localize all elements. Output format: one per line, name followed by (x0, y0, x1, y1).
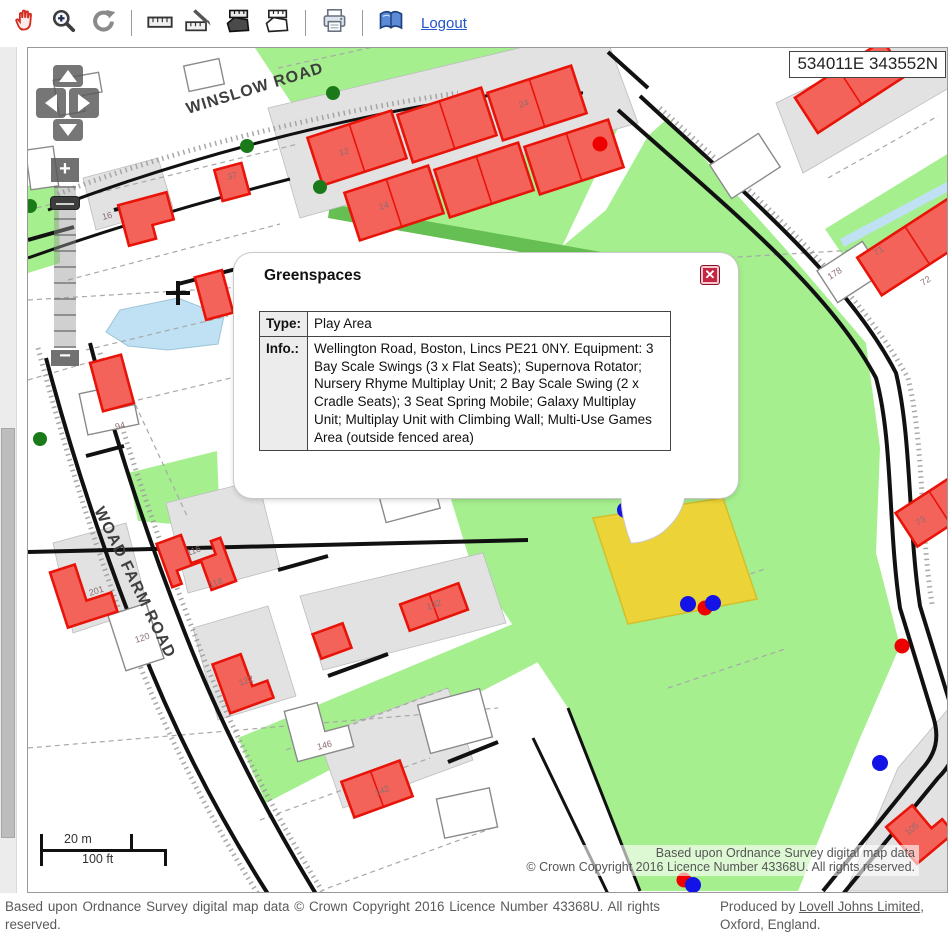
pan-up-button[interactable] (53, 65, 83, 87)
zoom-slider-track[interactable] (54, 186, 76, 348)
zoom-in-tool-button[interactable] (49, 8, 79, 38)
print-icon (321, 7, 348, 39)
pan-hand-icon (12, 7, 39, 39)
pan-right-button[interactable] (69, 88, 99, 118)
footer-producer-suffix: , (920, 899, 924, 914)
blue-point[interactable] (680, 596, 696, 612)
scale-imperial-label: 100 ft (82, 852, 113, 866)
scale-tick (164, 849, 167, 866)
scale-bar: 20 m 100 ft (40, 832, 180, 872)
tree-point[interactable] (313, 180, 327, 194)
tree-point[interactable] (33, 432, 47, 446)
footer-producer-prefix: Produced by (720, 899, 799, 914)
popup-body: Greenspaces ✕ Type: Play Area Info.: Wel… (234, 253, 738, 498)
refresh-button[interactable] (88, 8, 118, 38)
blue-point[interactable] (685, 877, 701, 893)
map-attribution: Based upon Ordnance Survey digital map d… (522, 845, 919, 877)
close-icon: ✕ (705, 267, 716, 282)
page-footer: Based upon Ordnance Survey digital map d… (0, 893, 950, 950)
toolbar-separator (305, 10, 306, 36)
map-attribution-line1: Based upon Ordnance Survey digital map d… (526, 846, 915, 861)
red-point[interactable] (593, 137, 608, 152)
footer-copyright: Based upon Ordnance Survey digital map d… (5, 898, 660, 934)
table-row: Type: Play Area (260, 312, 671, 337)
measure-distance-button[interactable] (184, 8, 214, 38)
measure-distance-icon (185, 7, 213, 40)
zoom-out-button[interactable]: − (51, 350, 79, 366)
arrow-left-icon (45, 94, 57, 112)
toolbar-separator (131, 10, 132, 36)
refresh-icon (90, 7, 117, 39)
measure-area-filled-icon (224, 7, 252, 40)
popup-tail (619, 496, 689, 546)
measure-area-filled-button[interactable] (223, 8, 253, 38)
toolbar-separator (362, 10, 363, 36)
left-scrollbar-thumb[interactable] (1, 428, 15, 838)
tree-point[interactable] (240, 139, 254, 153)
popup-close-button[interactable]: ✕ (700, 265, 720, 285)
attribute-label: Type: (260, 312, 308, 337)
page: Logout (0, 0, 950, 950)
legend-book-button[interactable] (376, 8, 406, 38)
popup-attribute-table: Type: Play Area Info.: Wellington Road, … (259, 311, 671, 451)
pan-left-button[interactable] (36, 88, 66, 118)
measure-area-outline-button[interactable] (262, 8, 292, 38)
measure-line-icon (146, 7, 174, 40)
zoom-slider-handle[interactable] (50, 196, 80, 210)
footer-producer-city: Oxford, England. (720, 917, 821, 932)
pan-down-button[interactable] (53, 119, 83, 141)
map-attribution-line2: © Crown Copyright 2016 Licence Number 43… (526, 860, 915, 875)
logout-link[interactable]: Logout (421, 15, 467, 32)
popup-title: Greenspaces (264, 267, 361, 285)
toolbar: Logout (0, 0, 950, 46)
lovell-johns-link[interactable]: Lovell Johns Limited (799, 899, 920, 914)
arrow-down-icon (59, 124, 77, 136)
table-row: Info.: Wellington Road, Boston, Lincs PE… (260, 336, 671, 450)
coordinates-readout: 534011E 343552N (789, 51, 946, 78)
zoom-in-icon (51, 8, 77, 39)
legend-book-icon (377, 7, 405, 40)
measure-area-outline-icon (263, 7, 291, 40)
scale-metric-label: 20 m (64, 832, 92, 846)
red-point[interactable] (895, 639, 910, 654)
attribute-value: Wellington Road, Boston, Lincs PE21 0NY.… (308, 336, 671, 450)
attribute-label: Info.: (260, 336, 308, 450)
map-viewport[interactable]: 12 24 14 16 37 94 201 116 118 120 122 13… (27, 47, 948, 893)
blue-point[interactable] (705, 595, 721, 611)
feature-popup: Greenspaces ✕ Type: Play Area Info.: Wel… (234, 253, 738, 498)
scale-tick (130, 834, 133, 851)
pan-tool-button[interactable] (10, 8, 40, 38)
attribute-value: Play Area (308, 312, 671, 337)
arrow-right-icon (78, 94, 90, 112)
blue-point[interactable] (872, 755, 888, 771)
tree-point[interactable] (326, 86, 340, 100)
print-button[interactable] (319, 8, 349, 38)
measure-line-button[interactable] (145, 8, 175, 38)
zoom-in-button[interactable]: + (51, 158, 79, 182)
footer-producer: Produced by Lovell Johns Limited, Oxford… (720, 898, 946, 934)
arrow-up-icon (59, 70, 77, 82)
